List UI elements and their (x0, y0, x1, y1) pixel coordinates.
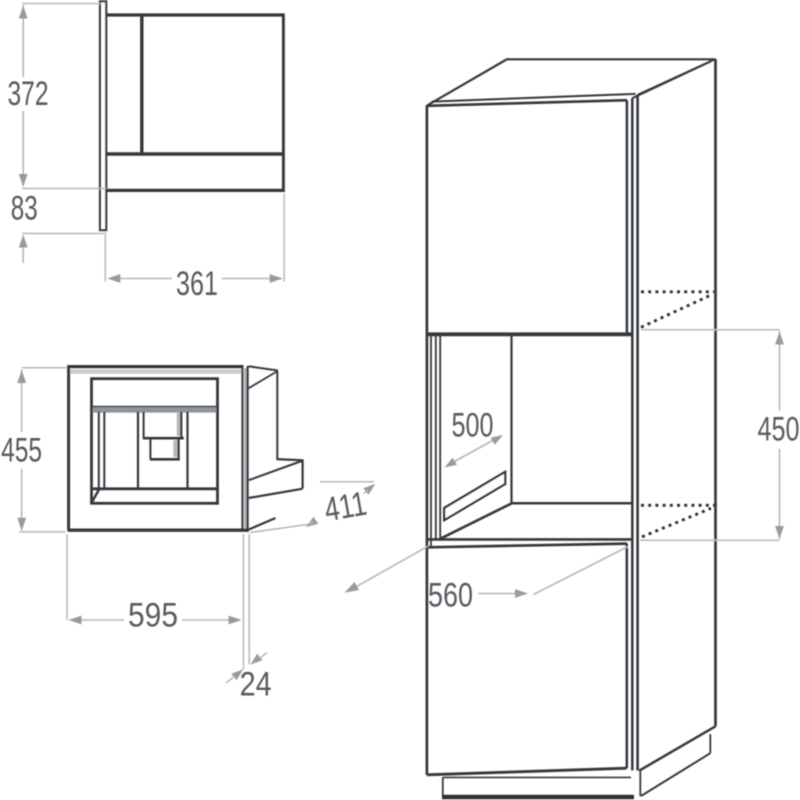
svg-text:560: 560 (428, 577, 473, 615)
svg-text:450: 450 (758, 411, 800, 449)
svg-text:455: 455 (1, 432, 42, 470)
svg-text:361: 361 (176, 265, 218, 303)
svg-text:595: 595 (128, 597, 178, 635)
svg-text:83: 83 (11, 190, 38, 228)
svg-text:411: 411 (322, 485, 370, 530)
svg-text:372: 372 (8, 75, 49, 113)
svg-text:500: 500 (452, 407, 494, 445)
svg-text:24: 24 (240, 665, 272, 703)
